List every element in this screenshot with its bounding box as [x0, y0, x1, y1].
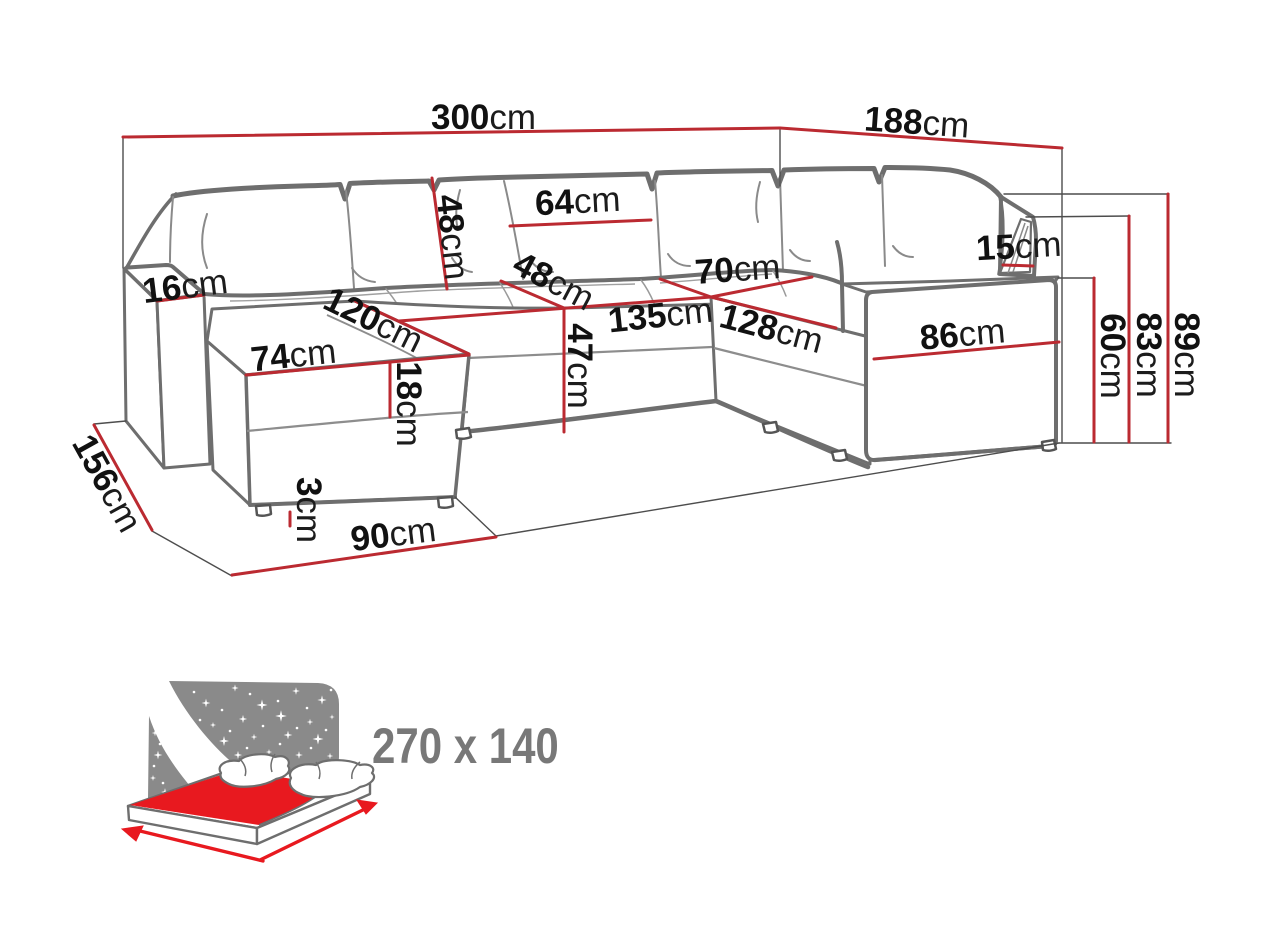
svg-text:60cm: 60cm	[1093, 313, 1132, 399]
svg-text:15cm: 15cm	[975, 225, 1063, 268]
svg-text:300cm: 300cm	[431, 98, 536, 137]
svg-text:18cm: 18cm	[389, 361, 428, 447]
svg-text:64cm: 64cm	[534, 180, 622, 223]
svg-text:70cm: 70cm	[694, 247, 782, 292]
svg-text:86cm: 86cm	[918, 311, 1007, 357]
svg-text:47cm: 47cm	[560, 323, 599, 409]
svg-text:83cm: 83cm	[1129, 312, 1168, 398]
svg-text:188cm: 188cm	[863, 99, 971, 145]
svg-text:3cm: 3cm	[289, 477, 328, 543]
svg-text:89cm: 89cm	[1167, 312, 1206, 398]
svg-text:270 x 140: 270 x 140	[372, 718, 559, 774]
